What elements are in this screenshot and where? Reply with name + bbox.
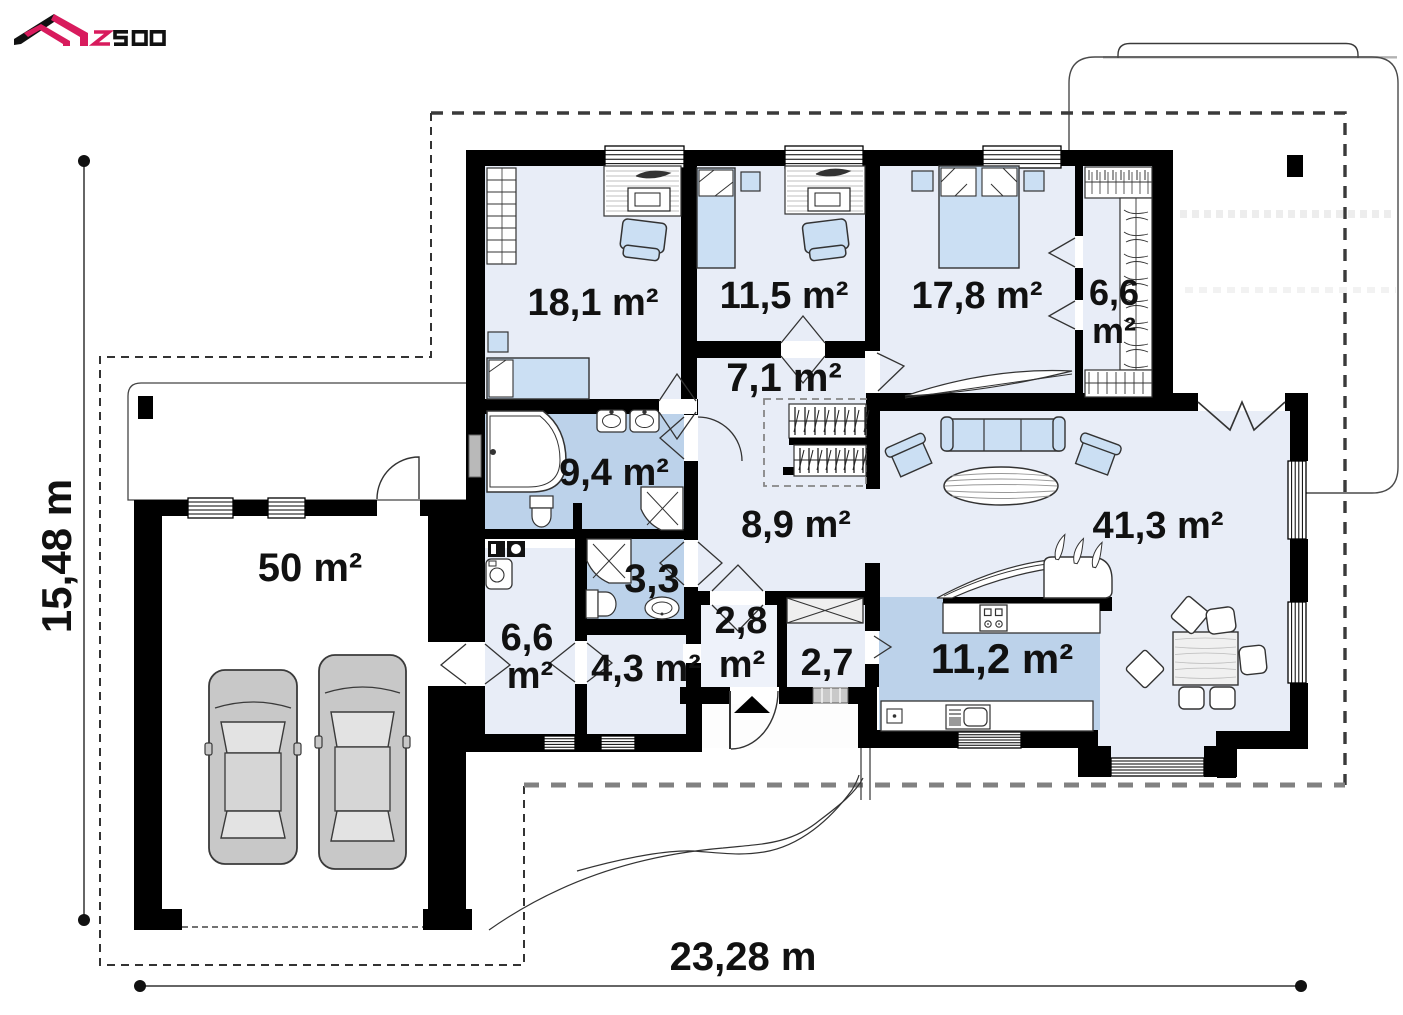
svg-text:8,9 m²: 8,9 m² [741,504,851,546]
svg-text:50 m²: 50 m² [258,546,363,590]
svg-text:7,1 m²: 7,1 m² [726,356,842,400]
svg-text:m²: m² [719,644,765,686]
svg-text:15,48 m: 15,48 m [33,479,80,633]
svg-text:17,8 m²: 17,8 m² [912,275,1043,317]
svg-text:9,4 m²: 9,4 m² [559,452,669,494]
svg-text:11,5 m²: 11,5 m² [720,275,849,317]
svg-text:m²: m² [507,655,553,697]
svg-text:18,1 m²: 18,1 m² [528,282,659,324]
svg-text:6,6: 6,6 [1089,272,1139,313]
svg-text:2,8: 2,8 [715,600,768,642]
svg-text:m²: m² [1092,310,1136,351]
svg-text:23,28 m: 23,28 m [670,935,817,979]
svg-text:41,3 m²: 41,3 m² [1093,505,1224,547]
svg-text:2,7: 2,7 [801,642,854,684]
svg-text:3,3: 3,3 [624,557,680,601]
svg-text:6,6: 6,6 [501,617,554,659]
svg-text:4,3 m²: 4,3 m² [591,648,701,690]
svg-text:11,2 m²: 11,2 m² [931,635,1073,682]
